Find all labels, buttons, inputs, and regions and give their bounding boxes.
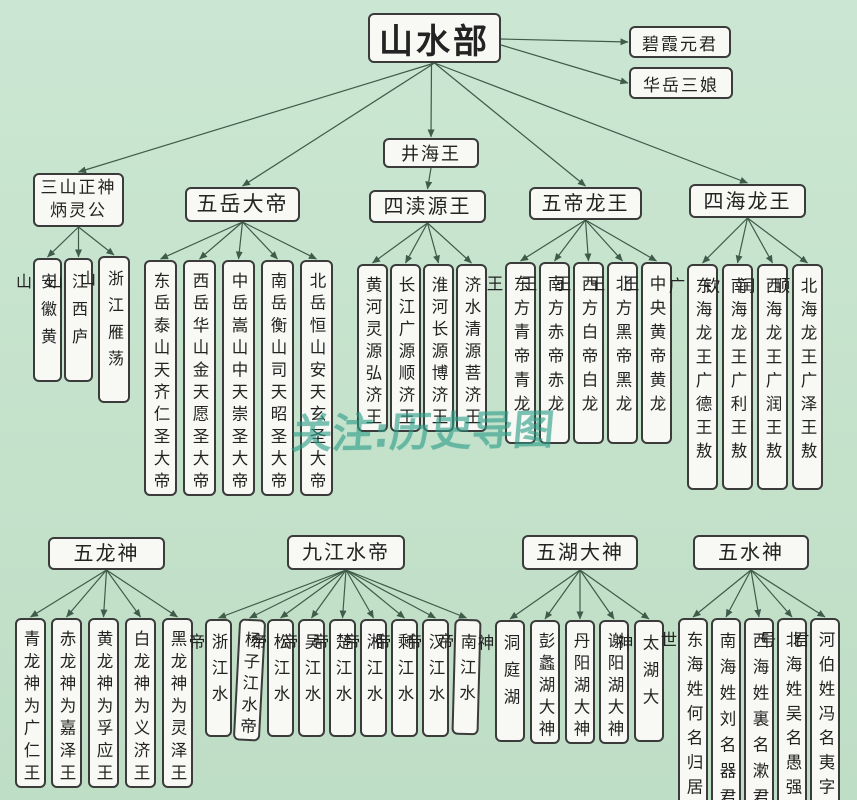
annex-node-huayuesanniang: 华岳三娘 [629,67,733,99]
group-header-label: 五水神 [718,539,784,566]
group-header-sihai: 四海龙王 [689,184,806,218]
group-header-wulong: 五龙神 [48,537,165,570]
mid-node-jinghaiwang: 井海王 [383,138,479,168]
annex-node-bixiayuanjun: 碧霞元君 [629,26,731,58]
group-header-label: 炳灵公 [50,200,107,223]
group-header-wushui: 五水神 [693,535,809,570]
tree-node: 中岳嵩山中天崇圣大帝 [222,260,255,496]
group-header-sidu: 四渎源王 [369,190,486,223]
tree-node: 丹阳湖大神 [565,620,595,744]
group-header-sanshan: 三山正神炳灵公 [33,173,124,227]
group-header-label: 三山正神 [41,177,117,200]
tree-node: 南岳衡山司天昭圣大帝 [261,260,294,496]
tree-node: 南海姓刘名器君 [711,618,741,800]
tree-node: 河伯姓冯名夷字君 [810,618,840,800]
tree-node: 东岳泰山天齐仁圣大帝 [144,260,177,496]
group-header-wuhu: 五湖大神 [522,535,638,570]
tree-node: 浙江雁荡山 [98,256,130,403]
group-header-label: 九江水帝 [302,539,390,566]
tree-node: 黄龙神为孚应王 [88,618,119,788]
tree-node: 洞庭湖神 [495,620,525,742]
tree-node: 白龙神为义济王 [125,618,156,788]
tree-node: 长江广源顺济王 [390,264,421,432]
group-header-label: 四渎源王 [384,193,472,220]
tree-node: 彭蠡湖大神 [530,620,560,744]
group-header-label: 五湖大神 [536,539,624,566]
group-header-label: 五岳大帝 [197,190,289,218]
root-node-shanshuibu: 山水部 [368,13,501,63]
group-header-label: 四海龙王 [704,188,792,215]
tree-node: 赤龙神为嘉泽王 [51,618,82,788]
tree-node: 北海龙王广泽王敖顺 [792,264,823,490]
tree-node: 西岳华山金天愿圣大帝 [183,260,216,496]
group-header-label: 五龙神 [74,540,140,567]
group-header-wudi: 五帝龙王 [529,187,642,220]
tree-node: 东海姓何名归居世 [678,618,708,800]
group-header-wuyue: 五岳大帝 [185,187,300,222]
group-header-label: 五帝龙王 [542,190,630,217]
org-chart-canvas: 山水部 碧霞元君 华岳三娘 井海王 关注:历史导图 三山正神炳灵公安徽黄山江西庐… [0,0,857,800]
tree-node: 黄河灵源弘济王 [357,264,388,432]
tree-node: 浙江水帝 [205,619,232,737]
tree-node: 青龙神为广仁王 [15,618,46,788]
group-header-jiujiang: 九江水帝 [287,535,405,570]
tree-node: 北岳恒山安天玄圣大帝 [300,260,333,496]
tree-node: 淮河长源博济王 [423,264,454,432]
